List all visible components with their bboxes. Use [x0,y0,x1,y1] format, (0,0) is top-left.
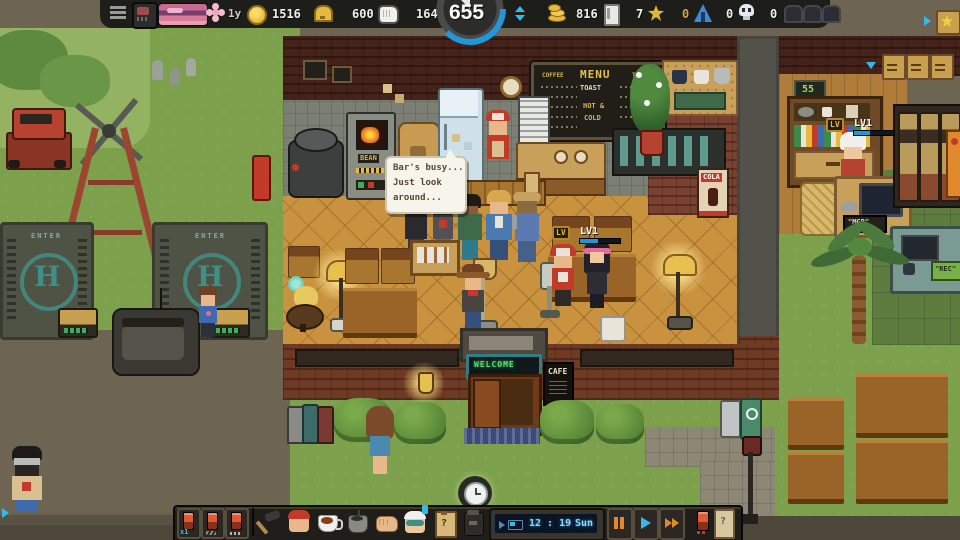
plant-pot [640,130,664,156]
npc-face [590,252,604,263]
hammer-icon [256,520,269,534]
reward-star-icon [936,10,960,35]
door-inside [501,379,533,425]
day-counter-dial[interactable]: 655 [433,0,507,46]
paper-roll [846,105,858,118]
pause-button[interactable] [607,508,633,540]
hotbar-item-grinder[interactable] [460,509,486,535]
machine-dial [554,150,568,164]
queue-slot[interactable] [225,508,249,539]
truck-wheel [8,160,20,168]
queue-flag-icon [206,531,216,535]
clipboard-question: ? [441,519,447,529]
npc-legs [555,290,571,306]
windmill-brace [88,180,134,185]
wall-frame [332,66,352,83]
wall-frame [303,60,327,80]
helper-alert-icon [422,505,428,514]
shopping-bag [600,316,626,342]
npc-bartender[interactable] [484,110,512,180]
quest-clipboard-icon[interactable] [882,54,906,80]
npc-legs [518,241,536,262]
lamp-shade [663,254,697,276]
red-postbox[interactable] [252,155,271,201]
npc-legs [201,323,215,337]
cafe-sign-text: CAFE [548,368,567,376]
play-icon [641,517,651,529]
tea-liquid [321,517,333,524]
queue-dots-icon [230,532,240,535]
skull-icon [739,4,754,16]
player-character[interactable] [456,268,490,332]
button-green [358,182,364,188]
npc-heart-logo [206,311,211,316]
battery-icon [508,520,523,530]
time-screen: 12 : 19 Sun [494,513,598,534]
gauge-strip [356,168,384,173]
bartender-cap-patch [492,113,504,120]
clock-icon [464,482,488,506]
cola-stripe [699,211,727,216]
tray [674,92,726,110]
cup-handle [336,519,343,530]
star-glyph [941,15,953,27]
npc-legs [490,240,508,260]
hand-icon [378,5,399,24]
npc-redcap-customer[interactable] [548,244,578,306]
roaster-lid [294,128,338,152]
menu-item-line [541,86,577,88]
level-progress-track [853,130,895,136]
storage-value: 7 [636,8,643,20]
camps-value: 0 [726,8,733,20]
fridge-magnet [464,142,472,150]
weather-cloud [167,8,183,13]
arrow-down-icon [515,15,525,21]
plant-flower [644,100,650,106]
skull-eye [748,8,751,12]
machine-buttons [356,180,386,190]
bush [394,402,446,444]
clipboard-lines [935,61,945,71]
cola-bottle [708,188,718,206]
level-label: LV1 [854,119,872,129]
car-windshield [122,318,184,327]
cooler-base [540,310,560,318]
bowl [798,107,814,117]
hotbar-item-tea[interactable] [315,509,341,535]
npc-legs [373,456,387,474]
manager-level-badge: LV LV1 [826,118,902,136]
hand-lines [383,10,392,17]
season-flower-icon [212,9,219,16]
skull-eye [742,8,745,12]
fast-forward-icon [672,518,679,528]
outdoor-table [856,440,948,504]
door-leaf-open [473,379,501,429]
npc-patch [439,220,447,228]
helipad-enter-label: ENTER [31,233,62,240]
front-window-band [580,349,734,367]
bush [540,400,594,444]
tall-plant [630,64,670,174]
storage-door-icon [604,4,620,26]
red-truck[interactable] [6,108,70,168]
helipad-vents [251,239,260,319]
fridge-handle [444,124,447,150]
battery-fill [510,522,515,526]
quest-tray[interactable] [866,54,958,78]
alert-dot [951,138,958,145]
level-progress-track [579,238,621,244]
long-table[interactable] [343,288,417,338]
npc-body [458,214,482,240]
npc-beard [15,465,39,476]
arrow-up-icon [515,6,525,12]
sticky-note [395,94,404,103]
clipboard-lines [887,61,897,71]
npc-body [515,213,539,241]
pegboard [662,60,738,116]
button-red [368,182,374,188]
windmill-hub [102,124,116,138]
helipad-vents [7,239,16,319]
plant-flower [636,72,642,78]
play-button[interactable] [633,508,659,540]
hotbar-item-worker[interactable] [286,509,312,535]
queue-slot[interactable] [201,508,225,539]
coin-ellipse [548,4,561,12]
porch-panel [469,336,533,350]
hotbar-item-pot[interactable] [344,509,370,535]
bush [596,404,644,444]
chevron-right-icon [924,16,931,26]
sign-smallprint [549,380,567,394]
mug [672,70,687,84]
npc-beard [517,201,537,213]
lantern-body [418,372,434,394]
charger-box[interactable] [58,308,98,338]
desk-hat [841,201,857,211]
outdoor-bench[interactable] [788,398,844,450]
hamburger-icon [110,11,126,14]
floor-lamp-right[interactable] [655,252,701,332]
clipboard-clip [441,511,447,515]
cola-poster-text: COLA [701,173,722,182]
game-viewport: ENTER H ENTER H MENU [0,0,960,540]
grinder-button [469,521,477,525]
menu-center-line: TOAST [580,85,601,92]
journal-icon [137,7,149,15]
workshop-sign-text: "REC" [935,266,956,273]
chevron-down-icon[interactable] [866,62,876,69]
npc-body [405,213,427,239]
cafe-npc-level-badge: LV LV1 [552,226,628,244]
bartender-apron [492,141,504,157]
day-value: Sun [575,519,593,529]
day-counter-value: 655 [449,2,484,23]
fast-forward-button[interactable] [659,508,685,540]
journal-keys [137,17,149,21]
door-mat [464,428,540,444]
tasks-clipboard-icon: ? [435,511,457,538]
coin-icon [247,5,267,25]
worker-cap [288,510,310,519]
level-tag: LV [552,226,570,240]
fire-glow [361,127,379,143]
outdoor-table [856,374,948,438]
npc-headphone-girl[interactable] [582,240,612,310]
speech-line: Bar's busy... [393,164,463,173]
vending-machine-alert[interactable] [946,130,960,198]
clipboard-lines [911,61,921,71]
grave-icon [784,5,803,23]
expand-arrow-icon[interactable] [2,508,9,518]
npc-hair [366,406,394,440]
manager-face [844,147,862,159]
plant-flower [656,82,662,88]
sticky-note [383,84,392,93]
bells-value: 600 [352,8,374,20]
truck-window [20,114,52,124]
speech-line: Just look [393,179,442,188]
skulls-value: 0 [770,8,777,20]
npc-legs [462,240,478,260]
grave-slots[interactable] [784,5,841,23]
sort-arrows[interactable] [515,6,525,22]
tent-trim [701,12,705,22]
clock-hand [475,493,481,495]
bell-slot [320,16,325,19]
office-number-text: 55 [802,85,814,95]
speech-bubble: Bar's busy... Just look around... [385,156,467,214]
journal-button[interactable] [132,2,158,29]
fridge-top [440,90,478,118]
reward-toggle[interactable] [924,10,960,34]
grinder-top [467,510,479,515]
bin-silver [720,400,741,438]
bell-icon [314,5,333,22]
quest-clipboard-icon[interactable] [930,54,954,80]
outdoor-bench[interactable] [788,452,844,504]
player-scarf [468,290,478,296]
bartender-face [489,121,507,135]
menu-title: MENU [580,69,611,80]
notice-frame [410,240,460,276]
pause-icon [620,517,624,529]
mystery-card-slot[interactable]: ? [714,509,735,539]
truck-cab [12,108,66,140]
hammer-head [264,510,281,523]
lamp-pole [676,272,680,318]
pot-mouth [351,516,363,521]
hotbar-item-hammer[interactable] [257,509,283,535]
level-tag: LV [826,118,844,132]
npc-body [370,436,390,456]
skull-jaw [743,16,750,20]
weather-widget[interactable] [158,3,208,26]
hotbar-item-tasks[interactable]: ? [431,509,457,535]
bookshelf[interactable] [787,96,883,188]
npc-walking-girl[interactable] [364,406,396,476]
menu-left-header: COFFEE [542,73,564,79]
cola-poster: COLA [697,168,729,218]
npc-face [201,295,215,306]
speech-line: around... [393,194,442,203]
mug [694,70,709,84]
helper-goggles [406,520,424,526]
npc-logo [22,482,31,491]
build-queue-panel: x1 [177,508,249,537]
vending-feet [697,531,707,534]
bin-red [317,406,334,444]
lamp-base [667,316,693,330]
speech-bubble-tail [445,149,457,159]
lamp-base [743,514,758,524]
hamburger-icon [110,6,126,9]
welcome-sign-text: WELCOME [474,361,515,369]
palm-tree [810,222,910,348]
npc-patron-overalls[interactable] [512,192,542,262]
npc-driver[interactable] [196,286,220,342]
hud-divider [252,508,254,536]
helipad-h-letter: H [34,263,60,291]
fridge-magnet [452,134,460,142]
cash-value: 816 [576,8,598,20]
vending-sprite-icon [697,511,709,531]
coffee-roaster[interactable] [286,112,344,196]
table-leg [300,324,306,332]
npc-face [490,202,508,214]
time-value: 12 : 19 [529,519,571,529]
cup [822,107,832,117]
level-progress-fill [580,239,598,243]
door-stripe [607,8,610,19]
hotbar-item-helper[interactable] [402,509,428,535]
vending-sprite-icon [231,512,242,530]
npc-body [587,272,607,294]
volume-icon [499,521,505,529]
coin-stack-icon [548,6,564,20]
mystery-card-question: ? [720,517,726,527]
fast-forward-icon [665,518,672,528]
fire-window [356,120,388,150]
queue-slot[interactable]: x1 [177,508,201,539]
queue-count: x1 [180,529,188,536]
gold-value: 1516 [272,8,301,20]
npc-bearded-guy[interactable] [8,446,46,520]
fist-knuckles [379,519,391,525]
charger-lights [64,328,88,333]
parked-car[interactable] [112,300,196,376]
hotbar-item-fist[interactable] [373,509,399,535]
workshop-sign: "REC" [931,261,960,281]
roaster-button [292,164,299,171]
vending-sprite-icon [207,512,218,530]
time-panel: 12 : 19 Sun [489,508,605,540]
palm-trunk [852,256,866,344]
npc-face [554,256,572,268]
npc-cap-front [556,248,570,256]
level-label: LV1 [580,227,598,237]
menu-button[interactable] [110,6,126,20]
roaster-unit [919,112,940,202]
car-roof [122,326,184,360]
npc-glasses [14,458,40,465]
car-antenna [160,288,162,310]
grave-icon [822,5,841,23]
plate-stack [518,96,550,144]
kettle [714,68,730,84]
npc-sleeves [512,215,517,229]
lamp-pole [748,452,753,516]
level-progress-fill [854,131,870,135]
bean-label: BEAN [358,154,379,163]
quest-clipboard-icon[interactable] [906,54,930,80]
helipad-enter-label: ENTER [195,233,226,240]
stars-value: 0 [682,8,689,20]
palm-crown [848,238,872,256]
trash-bins[interactable] [287,402,333,444]
bin-recycle [740,398,762,440]
wall-lantern [402,362,446,404]
npc-shirt-stripe [558,272,568,282]
npc-patron-blond[interactable] [484,190,514,262]
cafe-door[interactable] [468,374,542,436]
bench[interactable] [345,248,379,284]
outdoor-table-set[interactable] [856,374,956,500]
player-face [465,278,481,290]
npc-shirt [495,216,503,228]
machine-dial [574,150,588,164]
pot-handle [358,510,360,516]
hamburger-icon [110,16,126,19]
recycle-icon [746,408,758,420]
grave-icon [803,5,822,23]
pause-icon [614,517,618,529]
npc-legs [590,294,604,308]
helipad-vents [78,239,87,319]
clipboard-on-counter [524,172,540,194]
pinned-vending-slot[interactable] [694,509,711,536]
season-label: 1y [228,8,241,19]
notice-photos [417,247,449,263]
